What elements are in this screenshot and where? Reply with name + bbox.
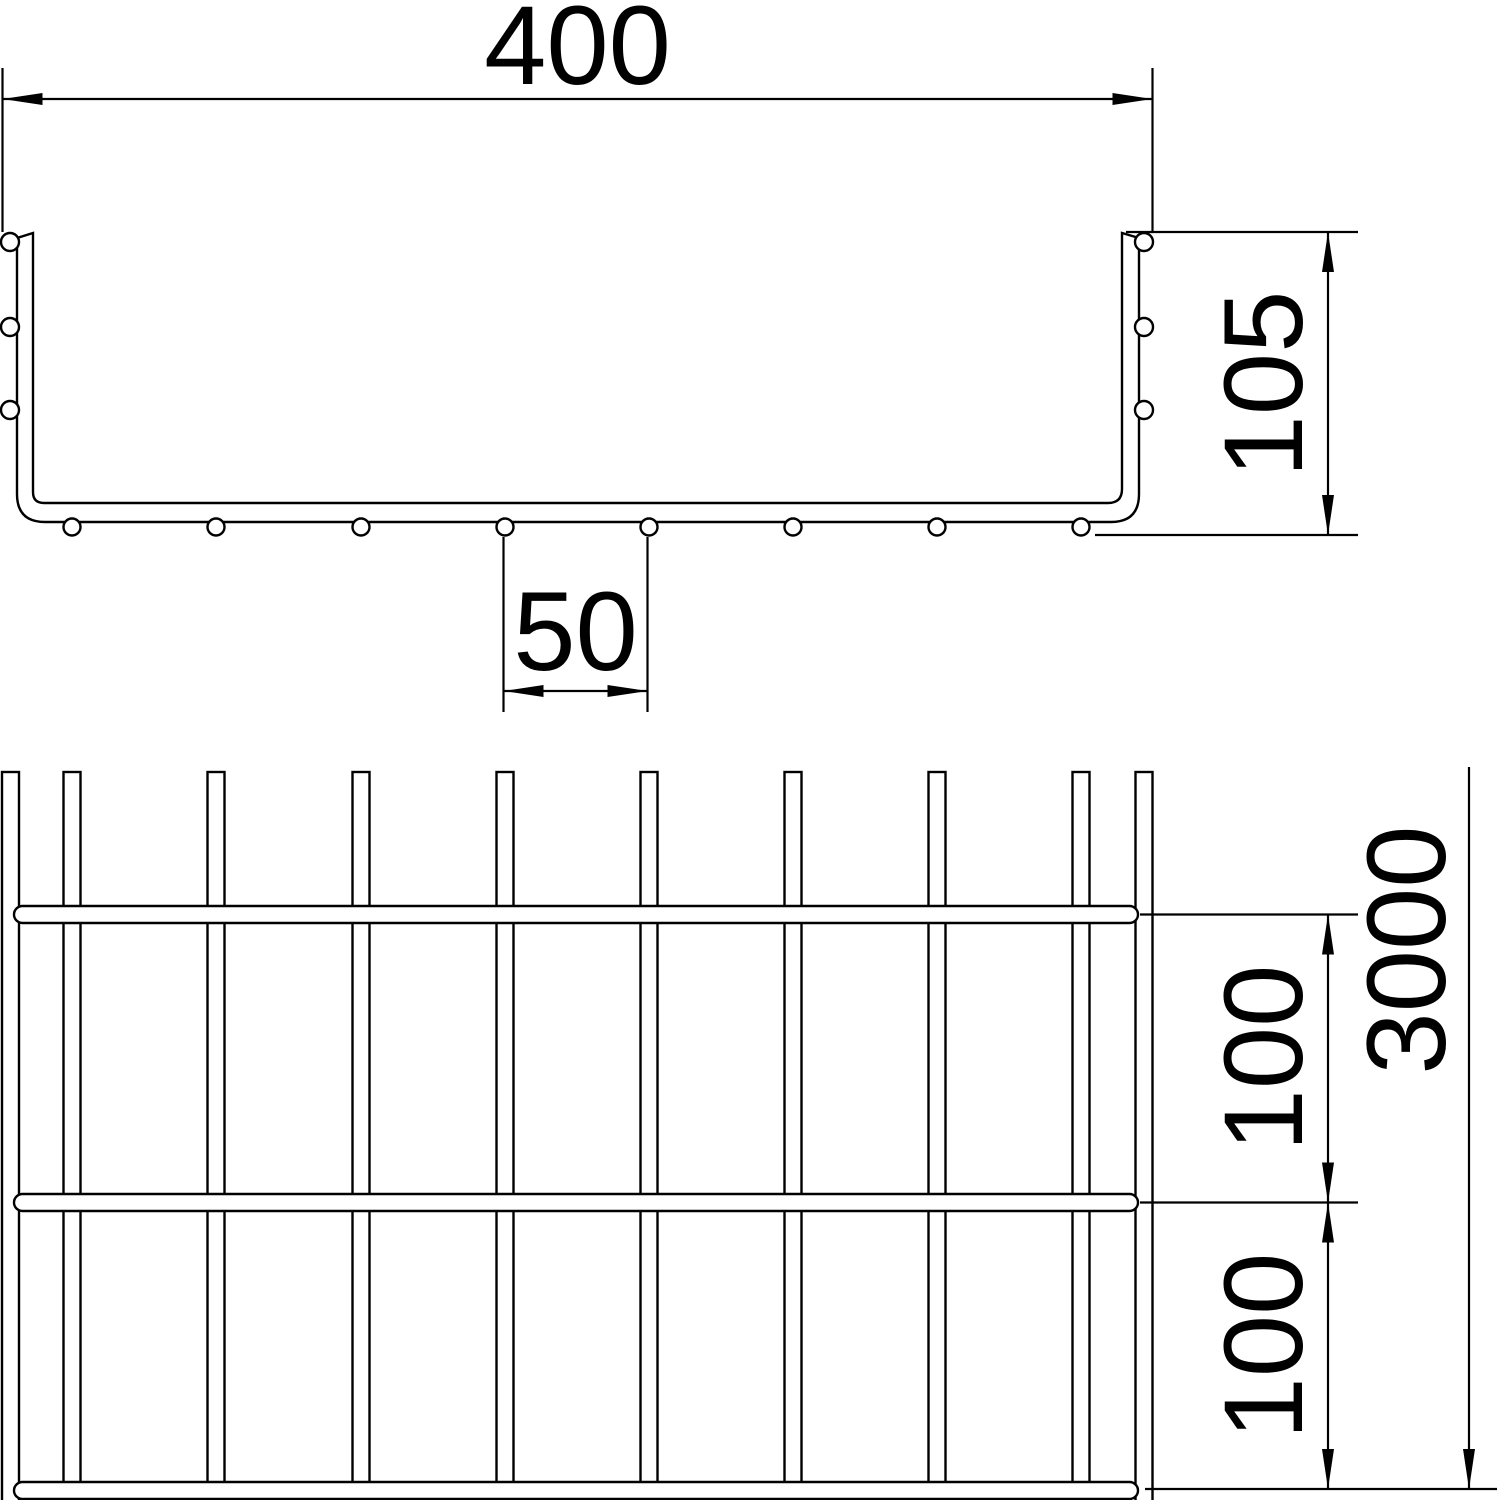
edge-wire-longitudinal [2,772,19,1500]
dimension-rung-spacing-lower-label: 100 [1201,1253,1326,1440]
dimension-rung-spacing-upper-label: 100 [1201,965,1326,1152]
dimension-rung-spacing-lower: 100 [1140,1203,1497,1490]
dimension-wire-spacing: 50 [504,537,648,712]
plan-view: 100 100 3000 [2,767,1497,1500]
cross-section-view: 400 105 50 [1,0,1358,712]
longitudinal-wire [785,772,802,1500]
cross-rung [14,1194,1138,1211]
longitudinal-wire [641,772,658,1500]
arrowhead-left [3,93,43,105]
side-wire-cross-section [1,233,19,251]
arrowhead-down [1322,1163,1334,1203]
dimension-height-label: 105 [1201,291,1326,478]
arrowhead-right [1113,93,1153,105]
side-wire-cross-section [1135,233,1153,251]
arrowhead-up [1322,232,1334,272]
arrowhead-down [1463,1449,1475,1489]
dimension-length-label: 3000 [1344,825,1469,1074]
longitudinal-wire [497,772,514,1500]
edge-wire-longitudinal [1136,772,1153,1500]
arrowhead-up [1322,1203,1334,1243]
floor-wire-cross-section [497,519,514,536]
floor-wire-cross-section [64,519,81,536]
side-wire-cross-section [1135,318,1153,336]
technical-drawing-page: 400 105 50 [0,0,1499,1500]
side-wire-cross-section [1,318,19,336]
mesh-cable-tray-dimension-drawing: 400 105 50 [0,0,1499,1500]
dimension-wire-spacing-label: 50 [513,569,638,694]
floor-wire-cross-section [785,519,802,536]
cross-rung [14,906,1138,923]
floor-wire-cross-section [641,519,658,536]
tray-channel-profile [17,233,1139,522]
arrowhead-down [1322,495,1334,535]
floor-wire-cross-section [353,519,370,536]
floor-wire-cross-section [208,519,225,536]
longitudinal-wire [353,772,370,1500]
floor-wire-cross-section [929,519,946,536]
cross-rung [14,1482,1138,1499]
dimension-length: 3000 [1344,767,1475,1489]
dimension-width-label: 400 [484,0,671,108]
longitudinal-wire [64,772,81,1500]
dimension-width: 400 [3,0,1153,232]
arrowhead-up [1322,915,1334,955]
floor-wire-cross-section [1073,519,1090,536]
side-wire-cross-section [1,401,19,419]
arrowhead-down [1322,1449,1334,1489]
dimension-rung-spacing-upper: 100 [1140,915,1358,1203]
longitudinal-wire [208,772,225,1500]
longitudinal-wire [929,772,946,1500]
side-wire-cross-section [1135,401,1153,419]
longitudinal-wire [1073,772,1090,1500]
